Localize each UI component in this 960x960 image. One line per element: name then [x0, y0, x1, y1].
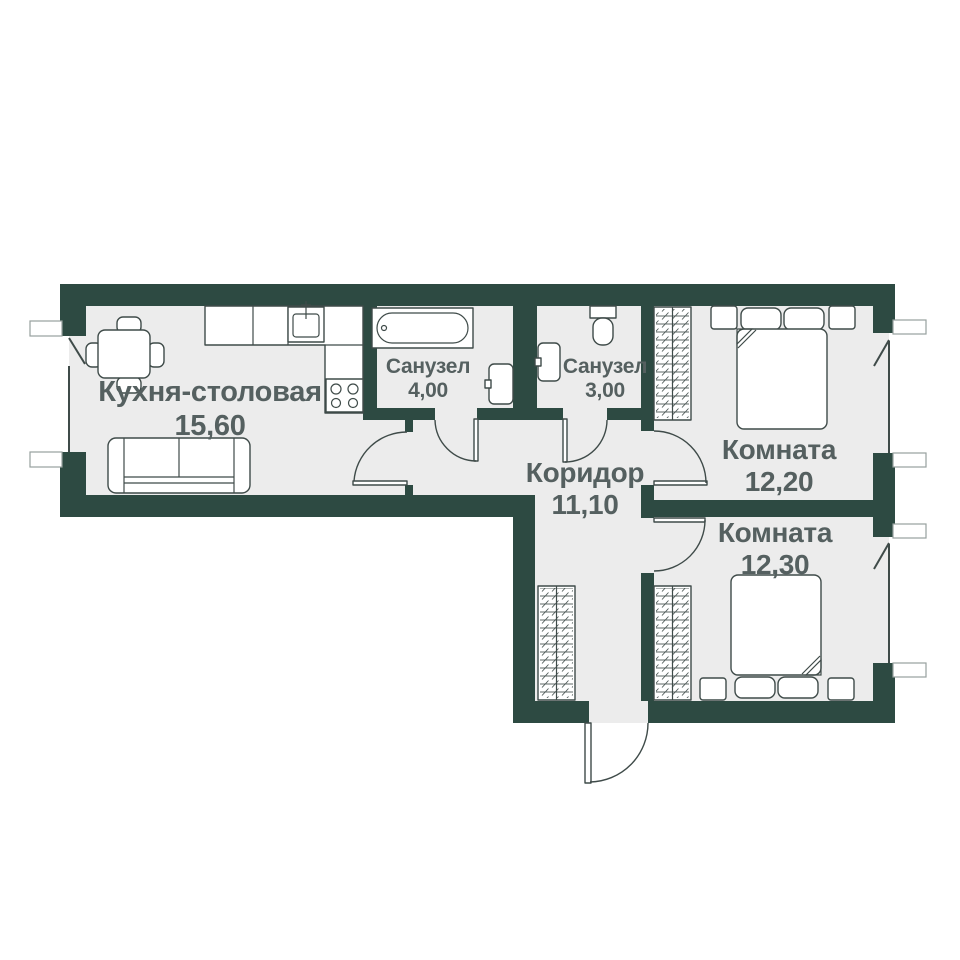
bathtub: [372, 308, 473, 348]
room-name: Комната: [722, 434, 836, 466]
washbasin-bathroom-1: [485, 364, 513, 404]
toilet-tank: [590, 306, 616, 318]
window-sill: [893, 663, 926, 677]
window-sill: [30, 452, 62, 467]
window-glass: [888, 544, 890, 663]
room-area: 4,00: [386, 379, 470, 403]
room-area: 12,30: [718, 549, 832, 581]
label-bathroom-2: Санузел 3,00: [563, 355, 647, 404]
room-area: 11,10: [526, 489, 644, 521]
washbasin: [489, 364, 513, 404]
label-bathroom-1: Санузел 4,00: [386, 355, 470, 404]
room-area: 12,20: [722, 466, 836, 498]
floor-entrance-gap: [589, 701, 648, 723]
room-name: Комната: [718, 517, 832, 549]
door-leaf: [353, 481, 407, 485]
mattress: [731, 575, 821, 675]
door-swing-arc: [590, 723, 648, 782]
toilet: [590, 306, 616, 345]
door-leaf: [654, 481, 707, 485]
wardrobe-room-1: [654, 307, 691, 420]
nightstand: [829, 306, 855, 329]
floor-window-gap-room1: [873, 333, 889, 453]
window-glass: [68, 366, 70, 452]
faucet-icon: [535, 358, 541, 366]
pillow: [735, 677, 775, 698]
window-sill: [893, 453, 926, 467]
window-sill: [30, 321, 62, 336]
room-area: 3,00: [563, 379, 647, 403]
window-sill: [893, 320, 926, 334]
window-glass: [888, 341, 890, 453]
dining-table: [98, 330, 150, 378]
window-sill: [893, 524, 926, 538]
pillow: [784, 308, 824, 330]
label-corridor: Коридор 11,10: [526, 457, 644, 522]
nightstand: [711, 306, 737, 329]
floor-plan-page: Кухня-столовая 15,60 Санузел 4,00 Санузе…: [0, 0, 960, 960]
sofa: [108, 438, 250, 493]
pillow: [778, 677, 818, 698]
toilet-bowl: [593, 318, 613, 345]
stove: [326, 379, 363, 412]
door-leaf: [474, 419, 478, 461]
door-leaf: [585, 723, 591, 783]
label-room-2: Комната 12,30: [718, 517, 832, 582]
door-leaf: [563, 419, 567, 462]
door-leaf: [654, 518, 705, 522]
wardrobe-corridor: [538, 586, 575, 700]
label-room-1: Комната 12,20: [722, 434, 836, 499]
room-name: Кухня-столовая: [98, 376, 321, 410]
label-kitchen: Кухня-столовая 15,60: [98, 376, 321, 443]
room-name: Санузел: [386, 355, 470, 379]
room-name: Коридор: [526, 457, 644, 489]
nightstand: [828, 678, 854, 700]
wardrobe-room-2: [654, 586, 691, 700]
kitchen-sink: [288, 301, 324, 342]
mattress: [737, 329, 827, 429]
entrance-door: [585, 723, 648, 783]
pillow: [741, 308, 781, 330]
stove-top: [326, 379, 363, 412]
faucet-icon: [485, 380, 491, 388]
room-area: 15,60: [98, 410, 321, 444]
washbasin-bathroom-2: [535, 343, 560, 381]
room-name: Санузел: [563, 355, 647, 379]
nightstand: [700, 678, 726, 700]
